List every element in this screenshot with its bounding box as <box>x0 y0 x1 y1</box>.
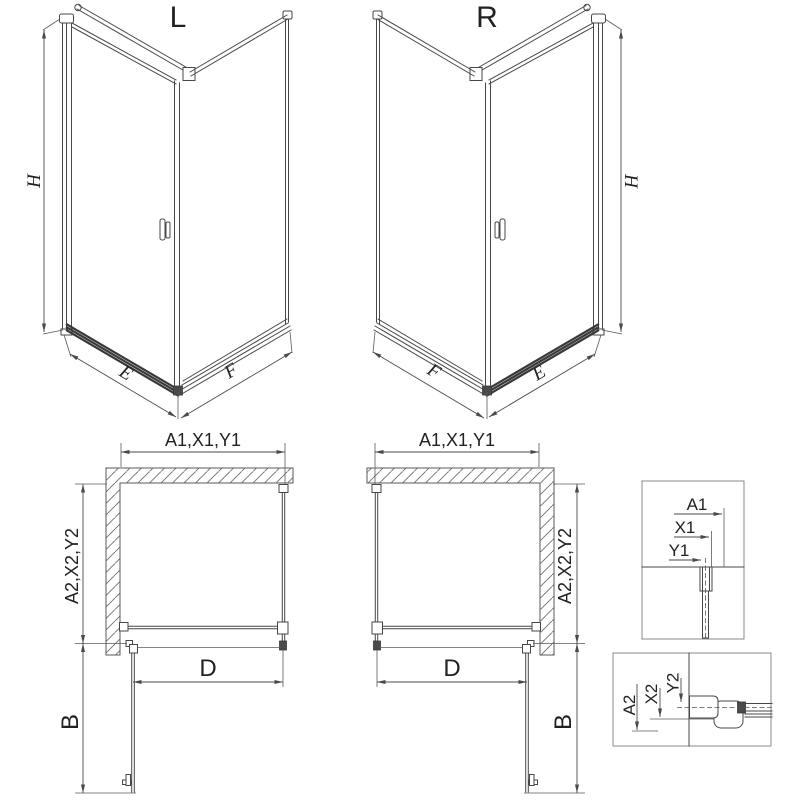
detail-x2-label: X2 <box>642 684 661 705</box>
detail-x1-label: X1 <box>675 518 696 537</box>
panel-width-dimension: F <box>181 332 292 418</box>
right-variant-label: R <box>476 1 498 34</box>
fixed-panel-top-view <box>278 485 289 688</box>
door-glass-dim-label: D <box>199 655 216 682</box>
door-closed-top-view <box>120 623 282 648</box>
panel-width-dim-label: F <box>220 359 242 384</box>
door-swing-dimension: B <box>57 644 136 794</box>
door-handle <box>160 219 170 240</box>
door-closed-top-view <box>379 623 541 648</box>
right-iso-drawing: R <box>373 1 641 419</box>
wall-profile-section <box>700 567 712 591</box>
left-variant-label: L <box>170 1 187 34</box>
wall-profile-right <box>592 14 606 335</box>
door-open-top-view <box>123 641 138 793</box>
left-plan-drawing: A1,X1,Y1 <box>57 430 293 793</box>
left-iso-drawing: L <box>24 1 292 419</box>
detail-a1-label: A1 <box>687 495 708 514</box>
detail-a2-label: A2 <box>620 695 639 716</box>
detail-y1-label: Y1 <box>669 541 690 560</box>
door-glass-dimension: D <box>377 655 527 682</box>
shower-enclosure-diagram: L <box>0 0 800 800</box>
door-width-dimension: E <box>64 335 178 419</box>
door-swing-dim-label: B <box>550 714 577 730</box>
door-glass-dimension: D <box>133 655 283 682</box>
height-dim-label: H <box>620 173 641 189</box>
wall-hatch <box>367 468 554 655</box>
technical-drawing-page: L <box>0 0 800 800</box>
detail-bottom-profile: A2 X2 Y2 <box>613 653 772 746</box>
door-width-dimension: E <box>487 335 601 419</box>
fixed-panel-top-view <box>372 485 383 688</box>
wall-profile-left <box>60 14 74 335</box>
door-handle <box>495 219 505 240</box>
height-dimension: H <box>24 19 63 334</box>
plan-width-dim-label: A1,X1,Y1 <box>165 430 241 450</box>
panel-width-dimension: F <box>373 332 484 418</box>
detail-top-profile: A1 X1 Y1 <box>642 481 744 639</box>
detail-y2-label: Y2 <box>664 673 683 694</box>
door-width-dim-label: E <box>528 361 550 386</box>
plan-width-dim-label: A1,X1,Y1 <box>419 430 495 450</box>
door-glass-dim-label: D <box>443 655 460 682</box>
fixed-side-panel <box>182 11 292 385</box>
right-plan-drawing: A1,X1,Y1 <box>367 430 585 793</box>
door-swing-dim-label: B <box>57 714 84 730</box>
wall-hatch <box>106 468 293 655</box>
door-open-top-view <box>523 641 538 793</box>
plan-depth-dim-label: A2,X2,Y2 <box>555 528 575 604</box>
bottom-profile-section <box>690 696 719 718</box>
height-dimension: H <box>602 19 641 334</box>
height-dim-label: H <box>24 173 45 189</box>
fixed-side-panel <box>373 11 483 385</box>
door-swing-dimension: B <box>524 644 585 794</box>
plan-depth-dim-label: A2,X2,Y2 <box>62 528 82 604</box>
door-width-dim-label: E <box>115 361 137 386</box>
panel-width-dim-label: F <box>423 359 445 384</box>
